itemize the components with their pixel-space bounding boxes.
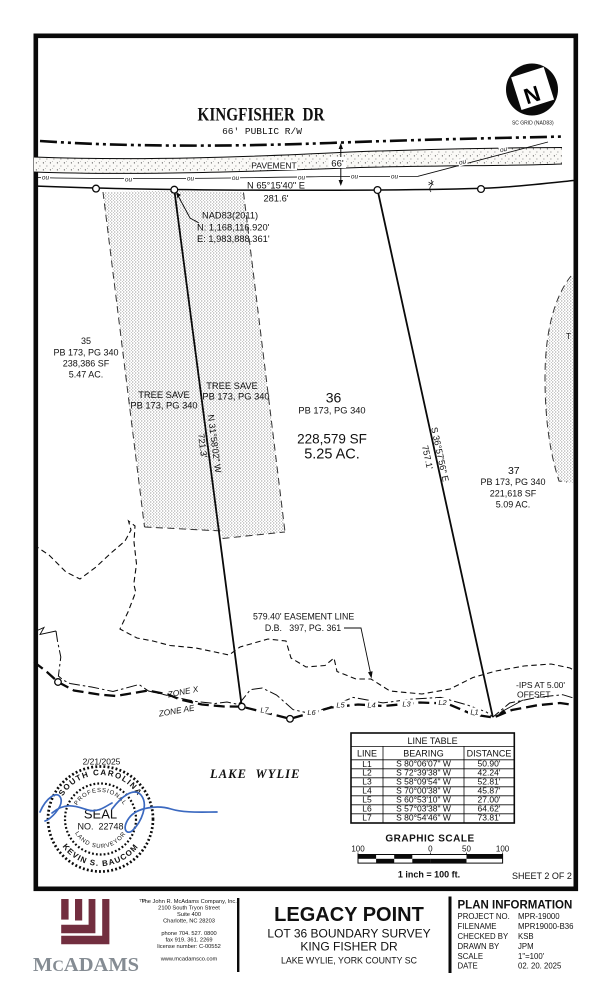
svg-text:www.mcadamsco.com: www.mcadamsco.com — [160, 957, 218, 963]
svg-text:66' PUBLIC R/W: 66' PUBLIC R/W — [222, 126, 302, 137]
svg-text:CHECKED BY: CHECKED BY — [458, 932, 509, 941]
svg-text:L3: L3 — [402, 700, 411, 709]
svg-text:ou: ou — [232, 175, 240, 182]
svg-text:FILENAME: FILENAME — [458, 922, 497, 931]
svg-text:MPR-19000: MPR-19000 — [518, 912, 560, 921]
svg-text:E: 1,983,888.361': E: 1,983,888.361' — [197, 234, 270, 244]
svg-text:BEARING: BEARING — [403, 749, 444, 759]
svg-text:0: 0 — [428, 845, 433, 854]
svg-text:SHEET 2 OF 2: SHEET 2 OF 2 — [512, 871, 572, 881]
svg-text:DATE: DATE — [458, 962, 478, 971]
svg-text:N 65°15'40" E: N 65°15'40" E — [247, 180, 305, 190]
svg-text:L1: L1 — [470, 708, 478, 717]
svg-text:-IPS AT 5.00': -IPS AT 5.00' — [516, 680, 565, 690]
svg-text:MCADAMS: MCADAMS — [33, 954, 139, 976]
svg-text:NAD83(2011): NAD83(2011) — [202, 211, 258, 221]
svg-text:LOT 36 BOUNDARY SURVEY: LOT 36 BOUNDARY SURVEY — [267, 927, 430, 941]
svg-text:L7: L7 — [362, 813, 372, 823]
svg-text:35: 35 — [81, 336, 91, 346]
svg-text:2100 South Tryon Street: 2100 South Tryon Street — [158, 906, 220, 912]
svg-text:LAKE WYLIE: LAKE WYLIE — [209, 767, 301, 781]
svg-text:SC GRID (NAD83): SC GRID (NAD83) — [512, 121, 554, 127]
svg-text:The John R. McAdams Company, I: The John R. McAdams Company, Inc. — [141, 899, 237, 905]
svg-text:LINE TABLE: LINE TABLE — [407, 736, 457, 746]
svg-text:228,579 SF: 228,579 SF — [297, 432, 367, 447]
svg-text:100: 100 — [351, 845, 365, 854]
svg-text:PLAN INFORMATION: PLAN INFORMATION — [458, 900, 573, 912]
svg-text:DRAWN BY: DRAWN BY — [458, 942, 501, 951]
svg-text:TREE SAVE: TREE SAVE — [206, 381, 258, 391]
svg-text:fax 919. 361. 2269: fax 919. 361. 2269 — [165, 938, 212, 944]
svg-text:PB 173, PG 340: PB 173, PG 340 — [480, 477, 545, 487]
svg-text:KSB: KSB — [518, 932, 534, 941]
svg-text:LAKE WYLIE, YORK COUNTY SC: LAKE WYLIE, YORK COUNTY SC — [281, 956, 418, 966]
svg-text:L6: L6 — [307, 708, 316, 717]
svg-text:36: 36 — [326, 390, 342, 406]
svg-text:1"=100': 1"=100' — [518, 952, 545, 961]
svg-text:PB 173, PG 340: PB 173, PG 340 — [53, 348, 118, 358]
svg-text:NO. 22748: NO. 22748 — [77, 822, 123, 832]
svg-text:SCALE: SCALE — [458, 952, 484, 961]
svg-text:ou: ou — [351, 174, 359, 181]
svg-text:license number: C-00552: license number: C-00552 — [157, 944, 221, 950]
svg-text:ou: ou — [125, 177, 133, 184]
svg-text:66': 66' — [331, 159, 344, 170]
svg-text:PROJECT NO.: PROJECT NO. — [458, 912, 510, 921]
svg-text:50: 50 — [462, 845, 471, 854]
svg-text:ou: ou — [391, 174, 399, 181]
svg-text:5.09 AC.: 5.09 AC. — [496, 500, 531, 510]
svg-text:OFFSET: OFFSET — [517, 690, 551, 700]
svg-text:PAVEMENT: PAVEMENT — [251, 161, 297, 171]
svg-text:PB 173, PG 340: PB 173, PG 340 — [202, 392, 269, 402]
svg-text:T: T — [566, 332, 571, 341]
svg-text:N: 1,168,116.920': N: 1,168,116.920' — [197, 223, 270, 233]
svg-text:ou: ou — [187, 176, 195, 183]
svg-text:ou: ou — [42, 175, 50, 182]
svg-text:100: 100 — [496, 845, 510, 854]
svg-text:JPM: JPM — [518, 942, 534, 951]
svg-text:L7: L7 — [260, 706, 269, 715]
svg-text:TREE SAVE: TREE SAVE — [138, 390, 190, 400]
svg-text:L2: L2 — [438, 698, 447, 707]
svg-text:579.40' EASEMENT LINE: 579.40' EASEMENT LINE — [253, 612, 354, 622]
svg-text:37: 37 — [508, 465, 520, 477]
svg-text:02. 20. 2025: 02. 20. 2025 — [518, 962, 562, 971]
svg-text:221,618 SF: 221,618 SF — [490, 488, 537, 498]
svg-text:PB 173, PG 340: PB 173, PG 340 — [298, 406, 365, 416]
svg-text:DISTANCE: DISTANCE — [467, 749, 512, 759]
svg-text:L5: L5 — [336, 701, 345, 710]
svg-text:Suite 400: Suite 400 — [177, 912, 201, 918]
svg-text:Charlotte, NC 28203: Charlotte, NC 28203 — [163, 919, 215, 925]
svg-text:238,386 SF: 238,386 SF — [63, 359, 110, 369]
svg-text:S 80°54'46" W: S 80°54'46" W — [396, 813, 451, 823]
svg-text:5.47 AC.: 5.47 AC. — [69, 370, 104, 380]
svg-text:L4: L4 — [367, 701, 375, 710]
svg-text:PB 173, PG 340: PB 173, PG 340 — [130, 401, 197, 411]
svg-text:phone 704. 527. 0800: phone 704. 527. 0800 — [161, 931, 216, 937]
svg-text:2/21/2025: 2/21/2025 — [83, 757, 121, 767]
svg-text:281.6': 281.6' — [263, 194, 288, 204]
svg-text:MPR19000-B36: MPR19000-B36 — [518, 922, 573, 931]
svg-text:KING FISHER DR: KING FISHER DR — [300, 940, 398, 954]
svg-text:5.25 AC.: 5.25 AC. — [304, 447, 360, 463]
svg-text:D.B. 397, PG. 361: D.B. 397, PG. 361 — [265, 623, 341, 633]
svg-text:1 inch = 100 ft.: 1 inch = 100 ft. — [398, 870, 460, 880]
svg-text:LINE: LINE — [357, 749, 377, 759]
svg-text:GRAPHIC SCALE: GRAPHIC SCALE — [385, 834, 474, 845]
svg-text:73.81': 73.81' — [478, 813, 501, 823]
svg-text:LEGACY POINT: LEGACY POINT — [274, 904, 424, 926]
svg-text:KINGFISHER DR: KINGFISHER DR — [198, 105, 325, 126]
